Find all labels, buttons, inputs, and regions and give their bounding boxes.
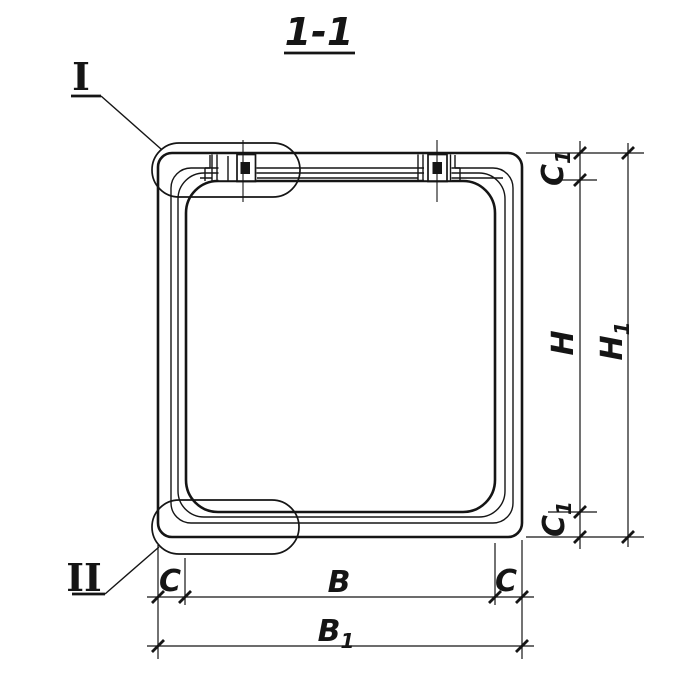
- dim-label-h: H: [546, 330, 581, 355]
- dim-label-b: B: [328, 565, 351, 600]
- drawing-sheet: I II C1 H H1 C1 C B C B1 1-1: [0, 0, 700, 700]
- slab-step-right: [455, 155, 460, 181]
- dim-label-c1-bottom: C1: [537, 501, 576, 537]
- top-joint-right: [418, 140, 452, 202]
- outer-contour: [158, 153, 522, 537]
- joint-key-square: [433, 162, 443, 174]
- dim-label-c-right: C: [495, 564, 517, 599]
- dim-label-h1: H1: [595, 321, 634, 360]
- detail-marker-1-label: I: [72, 54, 90, 99]
- section-drawing: I II C1 H H1 C1 C B C B1 1-1: [0, 0, 700, 700]
- detail-balloon-2: [152, 500, 299, 554]
- inner-contour: [186, 181, 495, 512]
- dim-label-c1-top: C1: [536, 150, 575, 186]
- section-title: 1-1: [285, 10, 354, 54]
- dim-label-c-left: C: [159, 564, 181, 599]
- intermediate-contour-2: [178, 173, 505, 517]
- slab-step-left: [205, 155, 210, 181]
- detail-marker-2-leader: [105, 547, 159, 594]
- detail-marker-1-leader: [101, 96, 161, 149]
- dim-label-b1: B1: [318, 614, 355, 653]
- intermediate-contour-1: [171, 168, 513, 523]
- top-joint-left: [212, 140, 257, 202]
- joint-key-square: [241, 162, 251, 174]
